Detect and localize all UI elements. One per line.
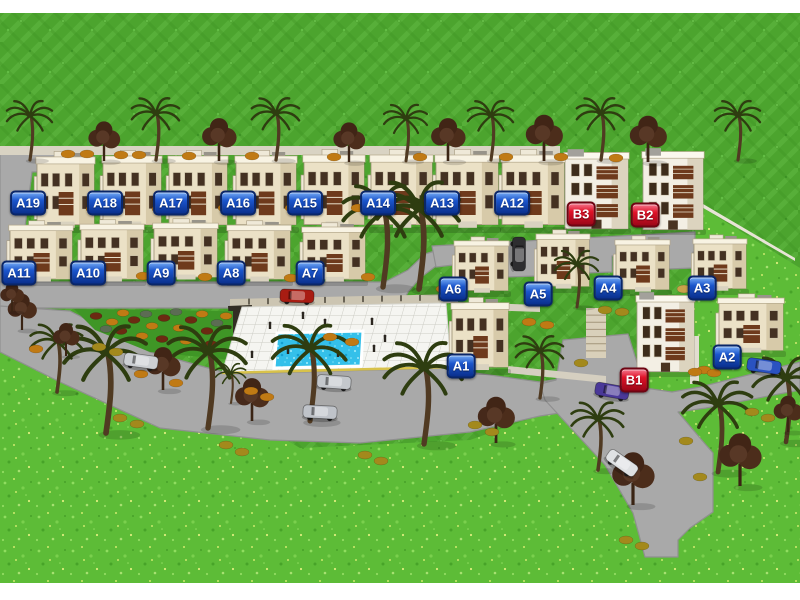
bush <box>114 151 128 159</box>
person-figure <box>302 312 305 319</box>
unit-label-B1[interactable]: B1 <box>620 368 649 393</box>
bush <box>182 152 196 160</box>
bush <box>374 457 388 465</box>
bush <box>29 345 43 353</box>
unit-label-A12[interactable]: A12 <box>494 191 530 216</box>
bush <box>761 414 775 422</box>
site-plan-svg <box>0 0 800 600</box>
unit-label-A14[interactable]: A14 <box>360 191 396 216</box>
bush <box>745 408 759 416</box>
building-B1 <box>635 292 697 377</box>
unit-label-B3[interactable]: B3 <box>567 202 596 227</box>
bush <box>554 153 568 161</box>
person-figure <box>384 335 387 342</box>
person-figure <box>373 345 376 352</box>
bush <box>260 393 274 401</box>
bush <box>198 273 212 281</box>
bush <box>327 153 341 161</box>
bush <box>499 153 513 161</box>
unit-label-A7[interactable]: A7 <box>296 261 325 286</box>
dark-car <box>509 236 526 272</box>
bush <box>358 451 372 459</box>
bush <box>132 151 146 159</box>
unit-label-A18[interactable]: A18 <box>87 191 123 216</box>
bush <box>485 428 499 436</box>
unit-label-A11[interactable]: A11 <box>1 261 36 286</box>
bush <box>679 437 693 445</box>
bush <box>540 321 554 329</box>
red-car <box>279 289 316 307</box>
bush <box>109 348 123 356</box>
unit-label-A17[interactable]: A17 <box>153 191 189 216</box>
bush <box>574 359 588 367</box>
person-figure <box>269 322 272 329</box>
site-plan: A19A18A17A16A15A14A13A12B3B2A11A10A9A8A7… <box>0 0 800 600</box>
bush <box>80 150 94 158</box>
person-figure <box>251 351 254 358</box>
bush <box>609 154 623 162</box>
bush <box>130 420 144 428</box>
bush <box>707 369 721 377</box>
bush <box>345 338 359 346</box>
bush <box>244 387 258 395</box>
unit-label-A3[interactable]: A3 <box>688 276 717 301</box>
unit-label-A8[interactable]: A8 <box>217 261 246 286</box>
unit-label-A4[interactable]: A4 <box>594 276 623 301</box>
person-figure <box>371 318 374 325</box>
unit-label-A19[interactable]: A19 <box>10 191 46 216</box>
bush <box>693 473 707 481</box>
bush <box>61 150 75 158</box>
bush <box>468 421 482 429</box>
unit-label-A5[interactable]: A5 <box>524 282 553 307</box>
bush <box>598 306 612 314</box>
unit-label-A13[interactable]: A13 <box>424 191 460 216</box>
unit-label-A6[interactable]: A6 <box>439 277 468 302</box>
bush <box>361 273 375 281</box>
bush <box>169 379 183 387</box>
bush <box>522 318 536 326</box>
bush <box>635 542 649 550</box>
bush <box>323 333 337 341</box>
bush <box>688 368 702 376</box>
bush <box>219 441 233 449</box>
unit-label-A9[interactable]: A9 <box>147 261 176 286</box>
bush <box>113 414 127 422</box>
bush <box>619 536 633 544</box>
bush <box>235 448 249 456</box>
bush <box>92 343 106 351</box>
unit-label-A10[interactable]: A10 <box>70 261 106 286</box>
unit-label-A2[interactable]: A2 <box>713 345 742 370</box>
bush <box>413 153 427 161</box>
unit-label-A1[interactable]: A1 <box>447 354 476 379</box>
unit-label-B2[interactable]: B2 <box>631 203 660 228</box>
silver-car-3 <box>302 405 339 423</box>
unit-label-A15[interactable]: A15 <box>287 191 323 216</box>
unit-label-A16[interactable]: A16 <box>220 191 256 216</box>
bush <box>615 308 629 316</box>
bush <box>245 152 259 160</box>
